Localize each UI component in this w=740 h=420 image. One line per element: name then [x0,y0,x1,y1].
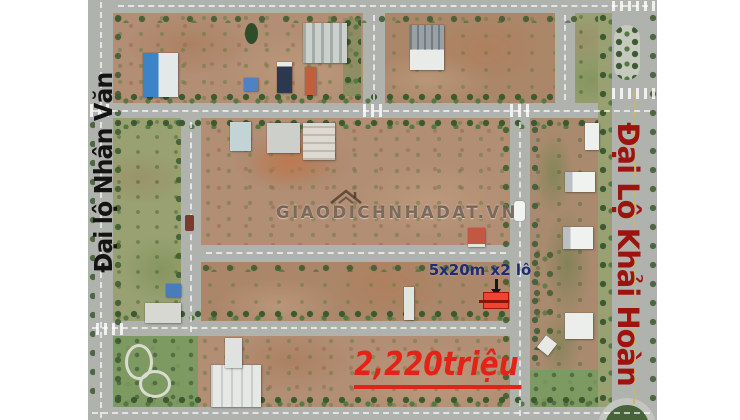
tree-row [113,118,598,129]
roadside-green-strip [598,13,612,407]
tarp-structure [244,78,258,91]
building [468,228,485,247]
plot-size-annotation: 5x20m x2 lô [400,261,560,279]
highlighted-plot [483,292,509,309]
lane-line [373,15,375,100]
building [303,123,335,160]
truck [585,123,599,150]
watermark: GIAODICHNHADAT.VN [257,203,537,222]
listing-image: GIAODICHNHADAT.VN Đại lộ Nhân Văn Đại Lộ… [0,0,740,420]
truck [185,215,194,231]
building [211,365,261,407]
building [143,53,178,97]
lane-line [92,327,506,329]
building [145,303,181,323]
price-text: 2,220triệu [354,344,521,389]
tarp-structure [166,284,181,297]
road-median-island [614,25,640,80]
aerial-photo: GIAODICHNHADAT.VN Đại lộ Nhân Văn Đại Lộ… [88,0,657,420]
park-path [139,370,171,398]
truck [563,227,593,249]
building [303,23,347,63]
building [305,67,316,95]
building [267,123,300,153]
building [230,122,251,151]
tree [245,23,258,44]
plot-divider-line [479,300,509,303]
truck [565,172,595,192]
road-label-right: Đại Lộ Khải Hoàn [611,99,645,409]
tree-row [113,395,598,407]
truck [565,313,593,339]
land-block [575,13,598,103]
lane-line [206,252,506,254]
road-label-left: Đại lộ Nhân Văn [89,73,119,273]
lane-line [118,5,648,7]
watermark-house-icon [328,188,364,204]
building [410,25,444,70]
building [225,338,242,368]
tree-row [648,13,657,402]
lane-line [92,412,650,414]
building [404,287,414,320]
lane-line [92,110,650,112]
lane-line [564,15,566,100]
tree-row [113,92,553,104]
building [277,62,292,93]
